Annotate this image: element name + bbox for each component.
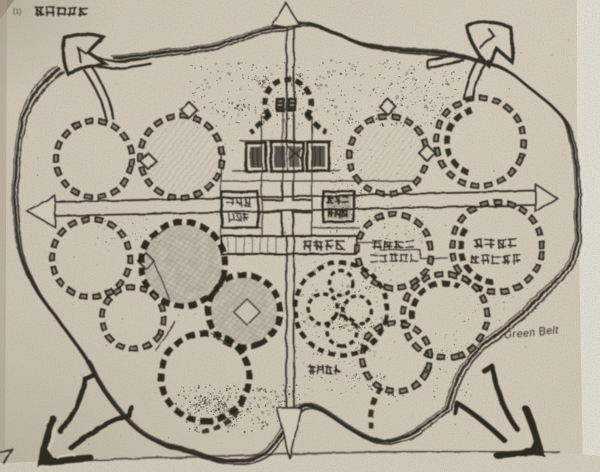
svg-text:(1): (1) <box>13 9 22 16</box>
svg-text:S1: S1 <box>282 118 288 124</box>
